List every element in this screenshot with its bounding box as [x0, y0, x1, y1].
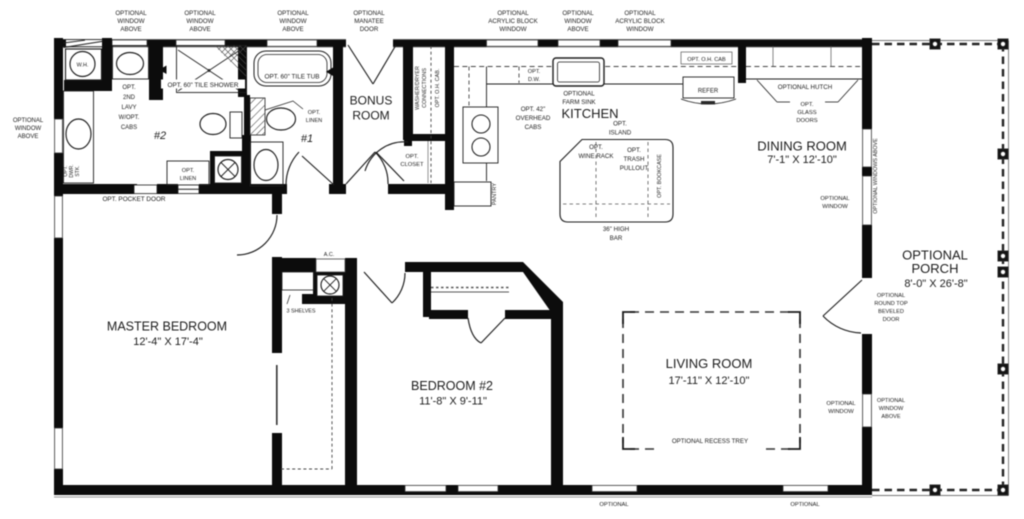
svg-text:W.H.: W.H.: [77, 63, 89, 69]
svg-text:ABOVE: ABOVE: [567, 26, 588, 33]
svg-text:#2: #2: [154, 130, 166, 142]
svg-text:OPTIONAL HUTCH: OPTIONAL HUTCH: [778, 84, 832, 91]
svg-text:OPTIONAL: OPTIONAL: [877, 293, 905, 299]
svg-text:ROOM: ROOM: [352, 109, 389, 123]
svg-text:OPTIONAL: OPTIONAL: [790, 502, 820, 508]
svg-text:REFER: REFER: [698, 89, 719, 95]
svg-text:D.W.: D.W.: [528, 77, 541, 83]
svg-text:17'-11" X 12'-10": 17'-11" X 12'-10": [669, 375, 750, 387]
svg-text:OPT. O.H. CAB.: OPT. O.H. CAB.: [435, 69, 441, 108]
svg-text:DINING ROOM: DINING ROOM: [757, 139, 847, 154]
svg-text:CLOSET: CLOSET: [400, 162, 424, 168]
svg-text:OPTIONAL: OPTIONAL: [13, 118, 44, 124]
svg-text:WINE RACK: WINE RACK: [578, 153, 614, 160]
svg-text:OPTIONAL: OPTIONAL: [497, 10, 529, 17]
svg-text:OPTIONAL: OPTIONAL: [599, 502, 629, 508]
svg-text:MANATEE: MANATEE: [354, 18, 383, 25]
svg-text:WINDOW: WINDOW: [879, 406, 904, 412]
svg-text:OPTIONAL: OPTIONAL: [826, 401, 856, 407]
svg-text:WINDOW: WINDOW: [626, 26, 653, 33]
svg-text:OPT.: OPT.: [182, 168, 195, 174]
svg-text:OPTIONAL WINDOWS ABOVE: OPTIONAL WINDOWS ABOVE: [873, 138, 879, 214]
svg-text:OPTIONAL: OPTIONAL: [115, 10, 147, 17]
svg-text:12'-4" X 17'-4": 12'-4" X 17'-4": [133, 336, 203, 348]
svg-text:OPT.: OPT.: [801, 102, 814, 108]
svg-text:FARM SINK: FARM SINK: [562, 99, 596, 106]
svg-text:OPTIONAL: OPTIONAL: [277, 10, 309, 17]
svg-text:OPTIONAL: OPTIONAL: [624, 10, 656, 17]
svg-text:36" HIGH: 36" HIGH: [603, 226, 629, 233]
svg-text:CABS: CABS: [121, 125, 137, 131]
svg-text:WINDOW: WINDOW: [822, 204, 848, 210]
svg-text:PANTRY: PANTRY: [492, 183, 498, 205]
svg-text:OPTIONAL: OPTIONAL: [877, 398, 905, 404]
svg-text:A.C.: A.C.: [324, 252, 334, 258]
svg-text:OPTIONAL: OPTIONAL: [820, 196, 850, 202]
svg-text:OPTIONAL: OPTIONAL: [563, 91, 595, 98]
svg-text:8'-0" X 26'-8": 8'-0" X 26'-8": [904, 278, 967, 290]
svg-text:WINDOW: WINDOW: [15, 126, 42, 132]
svg-text:WINDOW: WINDOW: [117, 18, 144, 25]
svg-text:DOOR: DOOR: [360, 26, 379, 33]
svg-text:OPT.: OPT.: [613, 121, 627, 128]
svg-text:ABOVE: ABOVE: [120, 26, 141, 33]
svg-text:OPT. POCKET DOOR: OPT. POCKET DOOR: [102, 196, 165, 203]
svg-text:MASTER BEDROOM: MASTER BEDROOM: [107, 320, 227, 334]
svg-text:BONUS: BONUS: [350, 94, 393, 108]
svg-text:BAR: BAR: [610, 235, 623, 242]
svg-text:OPTIONAL: OPTIONAL: [353, 10, 385, 17]
svg-text:LAVY: LAVY: [122, 105, 137, 111]
svg-text:ABOVE: ABOVE: [881, 414, 901, 420]
svg-text:OPT. BOOKCASE: OPT. BOOKCASE: [657, 154, 663, 198]
svg-text:PORCH: PORCH: [912, 261, 959, 276]
svg-text:ACRYLIC BLOCK: ACRYLIC BLOCK: [615, 18, 665, 25]
svg-text:OPT.: OPT.: [122, 85, 136, 91]
svg-text:OPT. O.H. CAB: OPT. O.H. CAB: [687, 57, 726, 63]
svg-text:OPTIONAL: OPTIONAL: [184, 10, 216, 17]
svg-text:OVERHEAD: OVERHEAD: [516, 115, 551, 122]
svg-text:ABOVE: ABOVE: [282, 26, 303, 33]
svg-text:OPT.: OPT.: [406, 154, 419, 160]
svg-text:WASHER/DRYER: WASHER/DRYER: [415, 66, 421, 110]
svg-text:WINDOW: WINDOW: [828, 409, 854, 415]
svg-text:7'-1" X 12'-10": 7'-1" X 12'-10": [767, 154, 837, 166]
svg-text:STK.: STK.: [75, 165, 81, 176]
svg-text:WINDOW: WINDOW: [499, 26, 526, 33]
svg-text:BEDROOM #2: BEDROOM #2: [411, 379, 493, 393]
svg-text:OPTIONAL: OPTIONAL: [562, 10, 594, 17]
svg-text:ABOVE: ABOVE: [189, 26, 210, 33]
svg-text:PULLOUT: PULLOUT: [620, 165, 649, 172]
svg-text:11'-8" X 9'-11": 11'-8" X 9'-11": [419, 396, 487, 408]
svg-text:KITCHEN: KITCHEN: [561, 106, 618, 121]
svg-text:ROUND TOP: ROUND TOP: [874, 301, 908, 307]
svg-text:LINEN: LINEN: [180, 176, 196, 182]
svg-text:GLASS: GLASS: [797, 110, 816, 116]
svg-text:CONNECTIONS: CONNECTIONS: [422, 68, 428, 108]
svg-text:LIVING ROOM: LIVING ROOM: [666, 356, 753, 371]
svg-text:OPTIONAL RECESS TREY: OPTIONAL RECESS TREY: [672, 438, 748, 445]
svg-text:DOORS: DOORS: [796, 118, 817, 124]
svg-text:WINDOW: WINDOW: [564, 18, 591, 25]
svg-text:ABOVE: ABOVE: [18, 134, 39, 140]
svg-text:W/OPT.: W/OPT.: [119, 115, 140, 121]
svg-text:#1: #1: [301, 133, 313, 145]
svg-text:BEVELED: BEVELED: [878, 309, 904, 315]
svg-text:OPT.: OPT.: [627, 147, 641, 154]
svg-text:OPT. 42": OPT. 42": [521, 106, 546, 113]
svg-text:LINEN: LINEN: [306, 118, 322, 124]
svg-text:WINDOW: WINDOW: [279, 18, 306, 25]
svg-text:ACRYLIC BLOCK: ACRYLIC BLOCK: [488, 18, 538, 25]
svg-text:WINDOW: WINDOW: [186, 18, 213, 25]
svg-text:ISLAND: ISLAND: [609, 130, 632, 137]
svg-text:TRASH: TRASH: [624, 156, 645, 163]
svg-text:OPT. 60" TILE TUB: OPT. 60" TILE TUB: [265, 74, 320, 81]
svg-text:OPT. 60" TILE SHOWER: OPT. 60" TILE SHOWER: [167, 82, 238, 89]
svg-text:OPT.: OPT.: [528, 69, 541, 75]
svg-text:2ND: 2ND: [123, 95, 136, 101]
svg-text:DOOR: DOOR: [883, 317, 900, 323]
svg-text:CABS: CABS: [525, 124, 542, 131]
svg-text:3 SHELVES: 3 SHELVES: [287, 309, 316, 315]
svg-text:OPT.: OPT.: [308, 110, 321, 116]
svg-text:OPT.: OPT.: [589, 144, 603, 151]
